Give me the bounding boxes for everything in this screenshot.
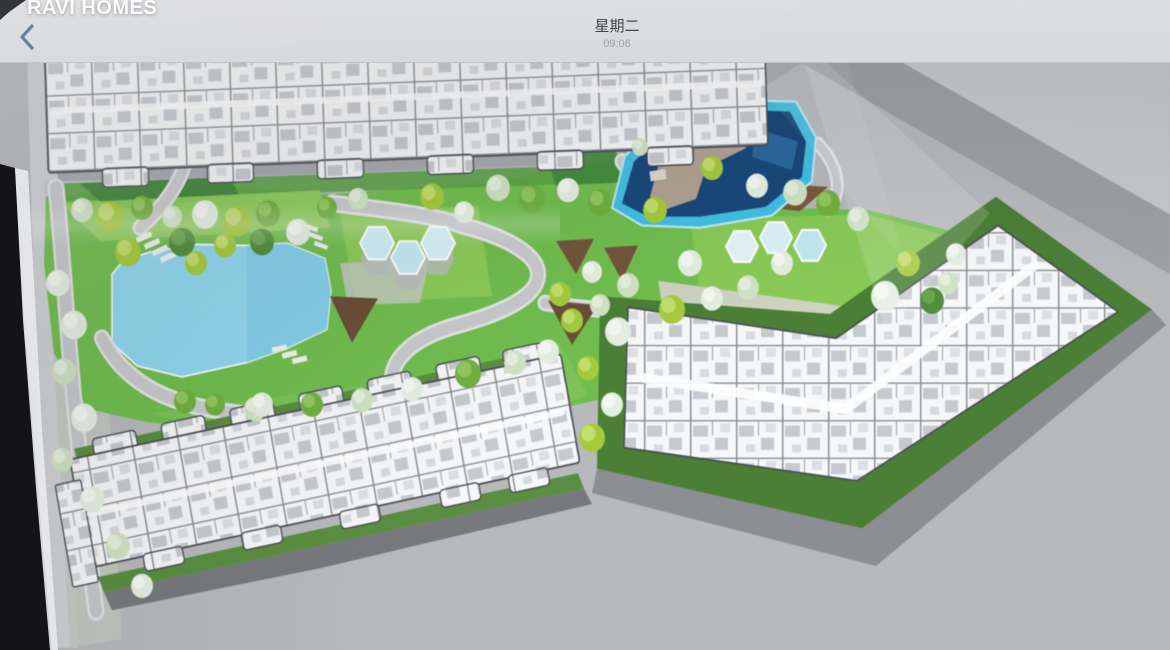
tree-highlight — [579, 358, 591, 371]
tree-highlight — [53, 450, 65, 463]
tree-highlight — [581, 426, 595, 442]
tree-highlight — [319, 198, 330, 210]
brand-watermark: RAVI HOMES — [27, 0, 157, 20]
tree-highlight — [488, 177, 501, 192]
tree-highlight — [661, 297, 675, 313]
tree-highlight — [739, 277, 751, 290]
tree-highlight — [645, 199, 658, 214]
tree-highlight — [748, 175, 760, 188]
tree-highlight — [457, 361, 471, 377]
tree-highlight — [350, 190, 361, 202]
app-header: 星期二 09:06 — [0, 0, 1170, 63]
tree-highlight — [82, 488, 95, 503]
tree-highlight — [592, 296, 603, 308]
tree-highlight — [563, 310, 575, 323]
pavilion-hex — [391, 241, 425, 274]
tree-highlight — [98, 204, 113, 221]
tree-highlight — [303, 394, 315, 407]
tree-highlight — [940, 274, 951, 286]
pavilion-hex-east — [794, 230, 826, 261]
tree-highlight — [288, 221, 301, 236]
tree-highlight — [73, 200, 85, 213]
pavilion-hex — [360, 227, 394, 260]
tree-highlight — [456, 203, 467, 215]
tree-highlight — [403, 379, 415, 392]
site-plan-layers — [0, 0, 1170, 650]
tree-highlight — [584, 263, 595, 275]
tree-highlight — [73, 406, 87, 422]
tree-highlight — [607, 319, 621, 335]
tree-highlight — [117, 240, 131, 256]
tree-highlight — [252, 231, 265, 246]
tree-highlight — [207, 395, 218, 407]
tree-highlight — [54, 360, 67, 375]
tree-highlight — [680, 252, 693, 267]
tree-highlight — [176, 391, 188, 404]
tree-highlight — [258, 202, 271, 217]
tree-highlight — [551, 284, 563, 297]
tree-highlight — [785, 181, 798, 196]
tree-highlight — [108, 535, 121, 550]
tree-highlight — [521, 187, 535, 203]
building-north-units-bottom — [317, 158, 364, 179]
page-subtitle-time: 09:06 — [594, 38, 639, 51]
building-north-units-bottom — [537, 150, 584, 171]
tree-highlight — [559, 180, 571, 193]
tree-highlight — [48, 272, 61, 287]
tree-highlight — [187, 253, 199, 266]
building-north-units-bottom — [207, 163, 254, 184]
pavilion-hex — [421, 227, 455, 260]
building-north-units-bottom — [647, 146, 694, 167]
tree-highlight — [225, 208, 240, 225]
tree-highlight — [216, 235, 228, 248]
tree-highlight — [253, 394, 265, 407]
building-north-units-bottom — [102, 167, 149, 188]
tree-highlight — [633, 140, 642, 150]
tree-highlight — [353, 390, 365, 403]
header-title-group: 星期二 09:06 — [594, 18, 639, 51]
tree-highlight — [164, 207, 175, 219]
tree-highlight — [194, 202, 208, 218]
tree-highlight — [506, 352, 518, 365]
tree-highlight — [422, 185, 435, 200]
tree-highlight — [603, 394, 615, 407]
tree-highlight — [133, 576, 145, 589]
site-plan-map[interactable] — [0, 0, 1170, 650]
pavilion-hex-east — [760, 222, 792, 253]
tree-highlight — [773, 253, 785, 266]
tree-highlight — [703, 288, 715, 301]
tree-highlight — [539, 341, 551, 354]
photographed-screen: 星期二 09:06 RAVI HOMES — [0, 0, 1170, 650]
tree-highlight — [133, 197, 145, 210]
tree-highlight — [171, 230, 185, 246]
back-button[interactable] — [16, 22, 42, 52]
tree-highlight — [703, 158, 715, 171]
tree-highlight — [590, 191, 603, 206]
tree-highlight — [922, 289, 935, 304]
tree-highlight — [818, 192, 831, 207]
page-title: 星期二 — [594, 18, 639, 35]
building-north-units-bottom — [427, 154, 474, 175]
tree-highlight — [619, 275, 631, 288]
chevron-left-icon — [16, 22, 42, 52]
pavilion-hex-east — [726, 231, 758, 262]
tree-highlight — [63, 313, 77, 329]
